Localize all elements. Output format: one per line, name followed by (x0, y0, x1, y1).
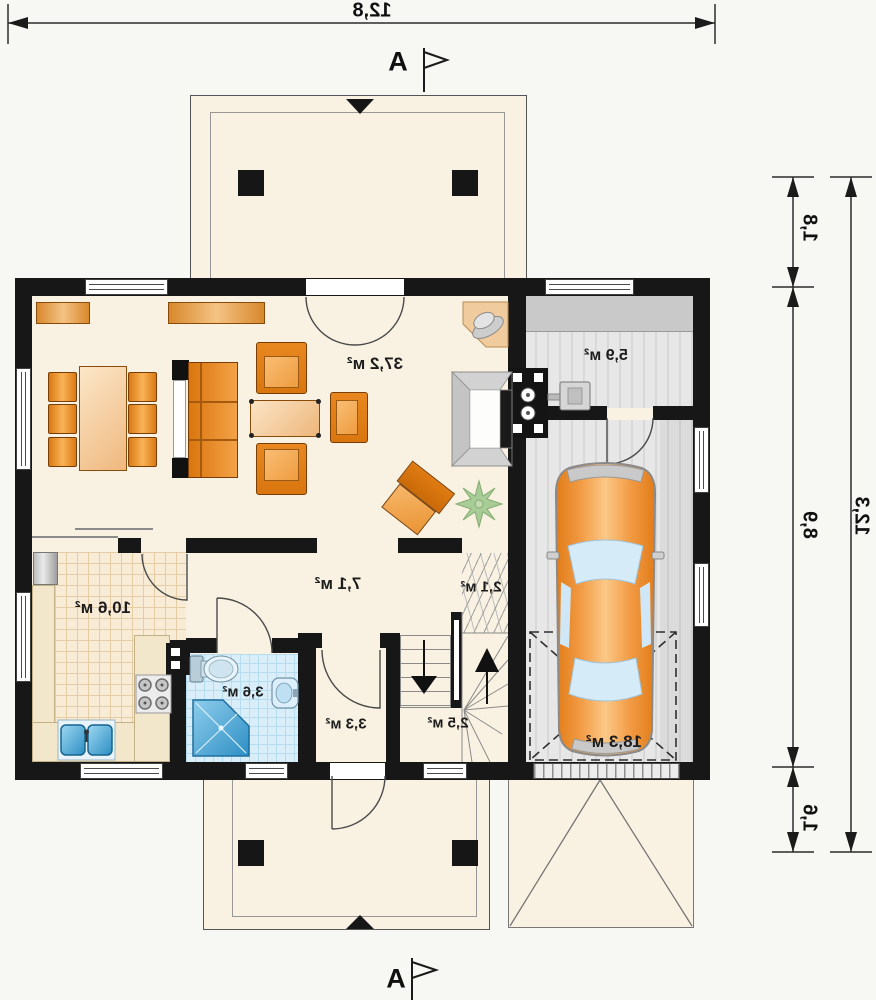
window (545, 279, 634, 295)
room-label-vestibule: 3,3 м² (325, 716, 366, 733)
window (423, 763, 467, 779)
coffee-table (250, 400, 320, 437)
window (694, 563, 709, 627)
dim-label-right-upper: 1,8 (798, 214, 821, 242)
room-label-pantry: 2,1 м² (460, 579, 501, 596)
wall-vestibule-right (386, 633, 400, 762)
wall-vestibule-top (298, 633, 322, 648)
garage-door (533, 763, 680, 779)
dim-label-right-lower: 1,6 (798, 804, 821, 832)
dining-chair (128, 437, 157, 467)
utility-floor (523, 332, 693, 408)
sofa-back-panel (173, 380, 186, 458)
terrace-inner-line (210, 112, 505, 290)
terrace-column (238, 170, 264, 196)
armchair (256, 443, 307, 495)
section-marker-bottom: A (386, 964, 406, 995)
armchair (330, 392, 368, 443)
window (16, 592, 31, 682)
entrance-door-opening (330, 763, 385, 779)
window (245, 763, 288, 779)
garage-side-shade (660, 420, 693, 762)
room-label-living: 37,2 м² (347, 354, 403, 374)
sofa-end-table (172, 360, 189, 380)
dining-chair (48, 437, 77, 467)
porch-inner-line (232, 778, 477, 917)
dim-label-right-total: 12,3 (850, 497, 873, 536)
french-door-opening (306, 279, 404, 295)
dining-chair (48, 404, 77, 434)
section-marker-top: A (388, 47, 408, 78)
bathroom-floor (186, 654, 298, 762)
sofa-end-table (172, 458, 189, 478)
dining-chair (128, 404, 157, 434)
sofa (188, 362, 238, 478)
dim-label-top: 12,8 (353, 0, 392, 23)
wall-utility-garage (653, 406, 693, 420)
wall-hall (186, 538, 317, 553)
dim-label-right-middle: 8,9 (798, 511, 821, 539)
sideboard (36, 302, 90, 324)
wall-hall (398, 538, 462, 553)
room-label-bathroom: 3,6 м² (222, 684, 263, 701)
window (85, 279, 168, 295)
room-label-utility: 5,9 м² (584, 347, 628, 365)
kitchen-counter-right (134, 635, 170, 762)
sideboard (168, 302, 265, 324)
window (16, 368, 31, 470)
window (694, 427, 709, 493)
wall-stair-spine (451, 612, 462, 708)
wall-vestibule-left (298, 633, 316, 762)
kitchen-open-boundary (32, 536, 118, 538)
living-floor-marker (75, 528, 153, 530)
wall-exterior-right (693, 278, 710, 780)
porch-column (452, 840, 478, 866)
room-label-hall: 7,1 м² (315, 574, 362, 594)
fridge (33, 552, 58, 585)
sofa-cushion-line (189, 401, 237, 403)
wall-hall (118, 538, 141, 553)
wall-bathroom-top (272, 638, 298, 653)
wall-utility-garage (523, 406, 607, 420)
room-label-garage: 18,3 м² (586, 732, 642, 752)
wall-bathroom-top (186, 638, 217, 653)
sofa-cushion-line (189, 439, 237, 441)
wall-garage-separator (508, 296, 526, 762)
dining-chair (48, 372, 77, 402)
window (80, 763, 163, 779)
porch-column (238, 840, 264, 866)
utility-worktop (523, 296, 693, 332)
driveway (508, 778, 694, 928)
sofa-backrest-line (200, 363, 202, 477)
dining-chair (128, 372, 157, 402)
stair-flight-left (400, 635, 451, 708)
room-label-stair: 2,5 м² (427, 715, 468, 732)
floor-plan: 37,2 м² 5,9 м² 18,3 м² 10,6 м² 7,1 м² 2,… (0, 0, 876, 1000)
terrace-column (452, 170, 478, 196)
room-label-kitchen: 10,6 м² (75, 598, 131, 618)
dining-table (79, 366, 127, 471)
armchair (256, 342, 307, 394)
wall-exterior-left (15, 278, 32, 780)
